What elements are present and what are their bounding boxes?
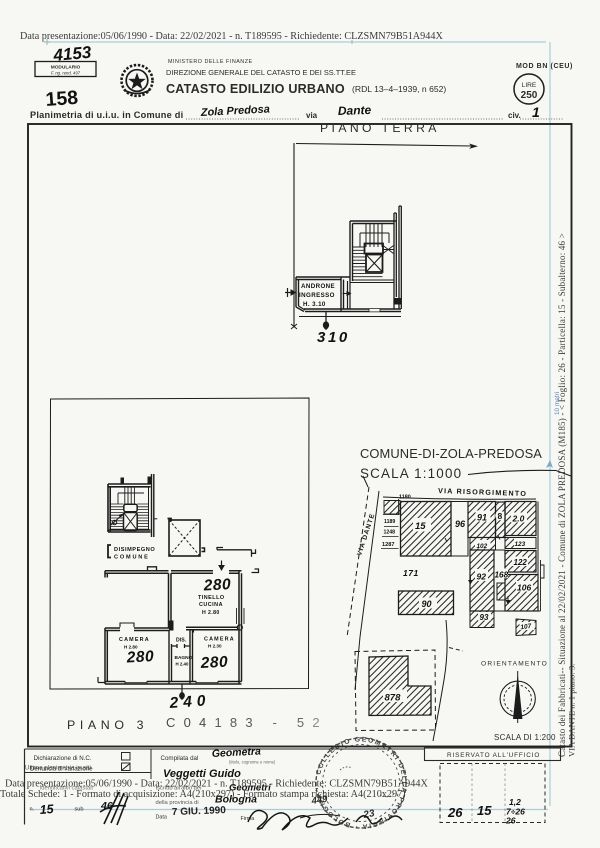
svg-text:1: 1 bbox=[532, 104, 540, 120]
svg-text:158: 158 bbox=[45, 87, 79, 111]
svg-text:26: 26 bbox=[505, 816, 516, 826]
svg-text:via: via bbox=[306, 111, 318, 120]
svg-text:7 GIU. 1990: 7 GIU. 1990 bbox=[172, 805, 227, 818]
svg-text:96: 96 bbox=[455, 519, 466, 529]
svg-text:15: 15 bbox=[415, 521, 426, 532]
svg-text:MOD BN (CEU): MOD BN (CEU) bbox=[516, 63, 573, 70]
svg-text:Planimetria di u.i.u. in Comun: Planimetria di u.i.u. in Comune di bbox=[30, 110, 183, 120]
svg-text:123: 123 bbox=[515, 541, 526, 548]
svg-text:15: 15 bbox=[39, 802, 55, 817]
svg-text:Data: Data bbox=[156, 815, 167, 821]
svg-text:DIREZIONE GENERALE DEL CATASTO: DIREZIONE GENERALE DEL CATASTO E DEI SS.… bbox=[166, 68, 356, 77]
svg-text:168: 168 bbox=[495, 571, 509, 580]
svg-text:DIS.: DIS. bbox=[176, 638, 187, 644]
svg-text:92: 92 bbox=[477, 572, 487, 582]
svg-text:Firma: Firma bbox=[241, 816, 255, 822]
svg-text:LIRE: LIRE bbox=[522, 82, 537, 89]
svg-text:INGRESSO: INGRESSO bbox=[299, 292, 335, 299]
svg-text:SCALA 1:1000: SCALA 1:1000 bbox=[360, 466, 462, 481]
svg-text:Totale Schede: 1 - Formato di: Totale Schede: 1 - Formato di acquisizio… bbox=[0, 789, 406, 800]
svg-text:SCALA DI 1:200: SCALA DI 1:200 bbox=[494, 733, 556, 742]
svg-text:Geometra: Geometra bbox=[212, 745, 262, 760]
svg-text:1248: 1248 bbox=[384, 530, 396, 536]
svg-text:26: 26 bbox=[447, 805, 463, 820]
svg-text:F. ng. rend. 497: F. ng. rend. 497 bbox=[51, 71, 81, 76]
svg-text:Data presentazione:05/06/1990: Data presentazione:05/06/1990 - Data: 22… bbox=[5, 779, 428, 790]
svg-text:n.: n. bbox=[30, 807, 35, 813]
svg-text:ANDRONE: ANDRONE bbox=[301, 283, 335, 290]
svg-text:COMUNE: COMUNE bbox=[114, 555, 150, 561]
svg-text:91: 91 bbox=[477, 513, 487, 523]
svg-text:1,2: 1,2 bbox=[509, 797, 521, 807]
svg-text:122: 122 bbox=[514, 558, 528, 567]
svg-text:BAGNO: BAGNO bbox=[175, 655, 193, 661]
svg-text:civ.: civ. bbox=[508, 111, 521, 120]
svg-text:Compilata dal: Compilata dal bbox=[161, 755, 199, 762]
svg-text:DISIMPEGNO: DISIMPEGNO bbox=[114, 547, 155, 553]
svg-text:PIANO TERRA: PIANO TERRA bbox=[320, 121, 440, 135]
svg-text:H 2.30: H 2.30 bbox=[208, 644, 222, 649]
svg-text:878: 878 bbox=[385, 693, 402, 704]
svg-text:della provincia di: della provincia di bbox=[156, 800, 199, 806]
svg-text:RISERVATO ALL'UFFICIO: RISERVATO ALL'UFFICIO bbox=[447, 752, 540, 759]
svg-text:1180: 1180 bbox=[399, 495, 411, 501]
svg-text:310: 310 bbox=[317, 329, 350, 346]
svg-text:CUCINA: CUCINA bbox=[199, 602, 223, 608]
svg-text:15: 15 bbox=[477, 803, 492, 818]
svg-text:VIA DANTE n. 1 piano: 3.: VIA DANTE n. 1 piano: 3. bbox=[567, 664, 577, 757]
svg-text:(titolo, cognome e nome): (titolo, cognome e nome) bbox=[229, 760, 276, 765]
svg-text:(RDL 13–4–1939, n 652): (RDL 13–4–1939, n 652) bbox=[352, 84, 446, 94]
svg-text:CATASTO EDILIZIO URBANO: CATASTO EDILIZIO URBANO bbox=[166, 82, 345, 96]
svg-text:ORIENTAMENTO: ORIENTAMENTO bbox=[481, 661, 548, 668]
svg-text:23: 23 bbox=[362, 808, 376, 821]
svg-text:280: 280 bbox=[199, 654, 228, 672]
svg-text:sub: sub bbox=[75, 807, 84, 813]
svg-text:H 2.80: H 2.80 bbox=[202, 610, 220, 616]
svg-text:102: 102 bbox=[477, 543, 488, 550]
svg-text:Data presentazione:05/06/1990: Data presentazione:05/06/1990 - Data: 22… bbox=[20, 31, 443, 42]
svg-text:8: 8 bbox=[498, 511, 503, 521]
svg-text:106: 106 bbox=[517, 583, 531, 593]
svg-text:280: 280 bbox=[202, 576, 231, 594]
svg-text:1189: 1189 bbox=[384, 519, 395, 525]
svg-text:171: 171 bbox=[403, 568, 419, 578]
svg-text:250: 250 bbox=[521, 90, 538, 101]
svg-text:PIANO 3: PIANO 3 bbox=[67, 718, 148, 732]
svg-text:2.0: 2.0 bbox=[512, 514, 525, 524]
svg-text:CAMERA: CAMERA bbox=[119, 637, 150, 643]
svg-text:1287: 1287 bbox=[382, 542, 394, 548]
svg-text:CAMERA: CAMERA bbox=[204, 637, 235, 643]
svg-text:90: 90 bbox=[422, 599, 432, 609]
svg-text:Denuncia di variazione: Denuncia di variazione bbox=[30, 766, 93, 773]
svg-text:10 metri: 10 metri bbox=[554, 392, 561, 415]
svg-text:280: 280 bbox=[125, 648, 154, 666]
svg-text:COMUNE-DI-ZOLA-PREDOSA: COMUNE-DI-ZOLA-PREDOSA bbox=[360, 446, 542, 461]
svg-text:H 2.40: H 2.40 bbox=[176, 662, 189, 667]
svg-text:MINISTERO DELLE FINANZE: MINISTERO DELLE FINANZE bbox=[168, 59, 253, 65]
svg-text:TINELLO: TINELLO bbox=[198, 595, 225, 601]
svg-text:Catasto dei Fabbricati-- Situa: Catasto dei Fabbricati-- Situazione al 2… bbox=[557, 233, 567, 757]
svg-text:C04183 - 52: C04183 - 52 bbox=[166, 715, 328, 730]
svg-text:Dante: Dante bbox=[338, 103, 372, 118]
svg-text:240: 240 bbox=[168, 692, 211, 712]
svg-text:H. 3.10: H. 3.10 bbox=[303, 301, 326, 308]
svg-text:Dichiarazione di N.C.: Dichiarazione di N.C. bbox=[34, 755, 92, 762]
svg-text:93: 93 bbox=[480, 613, 489, 622]
